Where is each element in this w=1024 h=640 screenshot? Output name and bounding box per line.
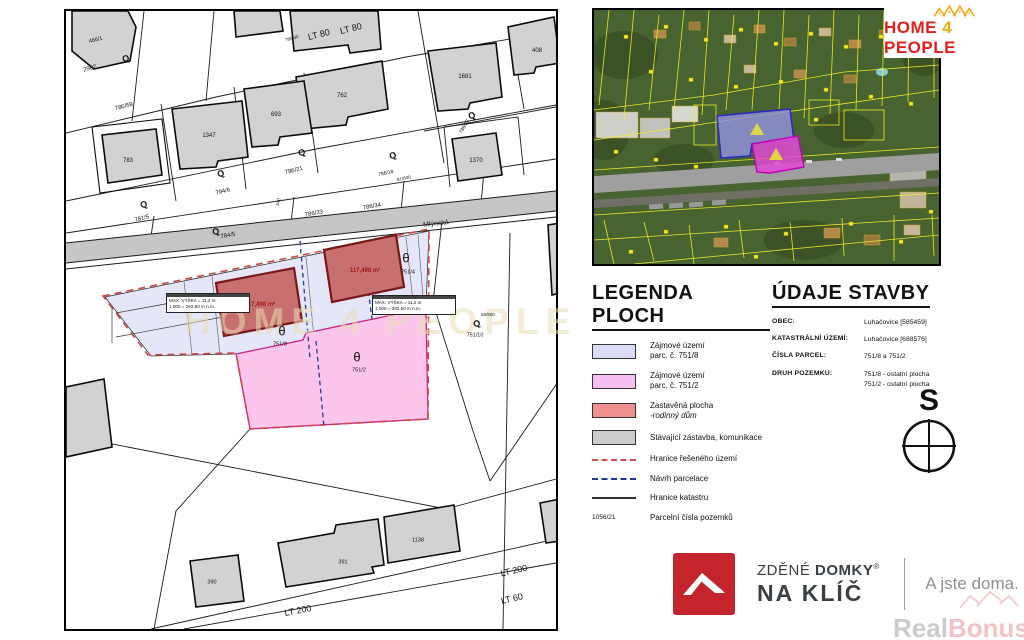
map-parcel-label: 390 bbox=[207, 580, 216, 586]
map-parcel-label: θ bbox=[402, 252, 409, 265]
home4people-logo: HOME 4 PEOPLE bbox=[884, 4, 1024, 58]
realbonus-word-bonus: Bonus bbox=[948, 613, 1024, 640]
legend-items: Zájmové územíparc. č. 751/8Zájmové území… bbox=[592, 341, 770, 523]
map-parcel-label: 781/5 bbox=[134, 214, 150, 223]
map-q-symbol: Q bbox=[216, 169, 226, 180]
realbonus-houses-icon bbox=[956, 588, 1020, 610]
legend-item-label: Stávající zástavba, komunikace bbox=[650, 433, 762, 443]
map-parcel-label: LT 80 bbox=[307, 28, 331, 42]
legend-item: Stávající zástavba, komunikace bbox=[592, 430, 770, 445]
building-data-value: 751/8 a 751/2 bbox=[864, 352, 906, 362]
legend-swatch bbox=[592, 344, 636, 359]
map-parcel-label: 786/21 bbox=[284, 166, 303, 176]
legend-section: LEGENDA PLOCH Zájmové územíparc. č. 751/… bbox=[592, 282, 770, 532]
legend-item: Zájmové územíparc. č. 751/2 bbox=[592, 371, 770, 392]
legend-item-label: Hranice katastru bbox=[650, 493, 708, 503]
building-data-label: KATASTRÁLNÍ ÚZEMÍ: bbox=[772, 335, 864, 345]
legend-swatch bbox=[592, 374, 636, 389]
registered-mark: ® bbox=[873, 562, 879, 571]
legend-key bbox=[592, 344, 638, 359]
map-parcel-label: θ bbox=[353, 351, 360, 364]
map-labels-layer: 466/12907786/59783134769376216814081370L… bbox=[66, 11, 556, 629]
legend-line-blue-dashed bbox=[592, 478, 636, 480]
zdene-domky-wordmark: ZDĚNÉ DOMKY® NA KLÍČ bbox=[757, 562, 880, 607]
cadastral-map: HOME 4 PEOPLE 466/12907786/5978313476937… bbox=[64, 9, 558, 631]
logo-word-domky: DOMKY bbox=[815, 562, 873, 579]
map-parcel-label: 81/600 bbox=[397, 175, 411, 182]
logo-word-people: PEOPLE bbox=[884, 38, 956, 57]
legend-line-solid bbox=[592, 497, 636, 499]
annotation-line: 1,000 = 292,50 m n.m. bbox=[169, 304, 247, 310]
building-data-value: Luhačovice [585459] bbox=[864, 318, 927, 328]
legend-swatch bbox=[592, 430, 636, 445]
legend-key bbox=[592, 459, 638, 461]
map-parcel-label: 751/10 bbox=[467, 333, 484, 339]
compass-label: S bbox=[898, 386, 960, 416]
legend-line-red-dashed bbox=[592, 459, 636, 461]
map-parcel-label: 640 bbox=[276, 198, 282, 206]
map-parcel-label: 786/59 bbox=[114, 102, 133, 112]
map-parcel-label: 391 bbox=[338, 560, 347, 566]
map-q-symbol: Q bbox=[388, 151, 398, 162]
map-parcel-label: LT 60 bbox=[500, 592, 524, 606]
legend-item: 1056/21Parcelní čísla pozemků bbox=[592, 513, 770, 523]
legend-item-label: Zastavěná plocha-rodinný dům bbox=[650, 401, 713, 422]
annotation-line: 1,000 = 292,50 m n.m. bbox=[375, 306, 453, 312]
legend-key bbox=[592, 430, 638, 445]
building-data-row: ČÍSLA PARCEL:751/8 a 751/2 bbox=[772, 352, 982, 362]
map-parcel-label: 751/2 bbox=[352, 368, 366, 374]
map-parcel-label: 117,498 m² bbox=[350, 268, 380, 274]
map-parcel-label: Mlýnská bbox=[423, 219, 449, 229]
map-parcel-label: 751/8 bbox=[273, 342, 287, 348]
map-parcel-label: 1347 bbox=[202, 133, 215, 139]
logo-word-four: 4 bbox=[942, 18, 952, 37]
legend-item: Zájmové územíparc. č. 751/8 bbox=[592, 341, 770, 362]
annotation-header-bar bbox=[167, 294, 249, 297]
building-data-label: ČÍSLA PARCEL: bbox=[772, 352, 864, 362]
page: HOME 4 PEOPLE 466/12907786/5978313476937… bbox=[0, 0, 1024, 640]
legend-key bbox=[592, 403, 638, 418]
map-parcel-label: LT 200 bbox=[500, 564, 529, 579]
map-parcel-label: 786/33 bbox=[304, 209, 323, 218]
logo-word-home: HOME bbox=[884, 18, 937, 37]
crown-icon bbox=[918, 4, 990, 18]
legend-item-label: Hranice řešeného území bbox=[650, 454, 737, 464]
legend-parcel-number-sample: 1056/21 bbox=[592, 514, 616, 521]
map-parcel-label: 786/32 bbox=[459, 119, 471, 135]
legend-item-label: Zájmové územíparc. č. 751/8 bbox=[650, 341, 705, 362]
annotation-header-bar bbox=[373, 296, 455, 299]
map-parcel-label: 1681 bbox=[458, 74, 471, 80]
legend-key bbox=[592, 374, 638, 389]
logo-word-zdene: ZDĚNÉ bbox=[757, 562, 810, 579]
map-parcel-label: 60/600 bbox=[481, 313, 495, 318]
building-data-label: OBEC: bbox=[772, 318, 864, 328]
building-data-label: DRUH POZEMKU: bbox=[772, 370, 864, 390]
map-parcel-label: 784/5 bbox=[220, 232, 236, 241]
map-q-symbol: Q bbox=[472, 319, 482, 330]
red-house-icon bbox=[673, 553, 735, 615]
legend-swatch bbox=[592, 403, 636, 418]
map-parcel-label: 762 bbox=[337, 93, 347, 99]
legend-item: Návrh parcelace bbox=[592, 474, 770, 484]
height-annotation-box: MAX. VÝŠKA = 11,2 m 1,000 = 292,50 m n.m… bbox=[372, 295, 456, 315]
map-parcel-label: LT 80 bbox=[339, 22, 363, 36]
realbonus-watermark: RealBonus.cz bbox=[893, 588, 1024, 640]
legend-item: Hranice katastru bbox=[592, 493, 770, 503]
map-parcel-label: 751/4 bbox=[401, 270, 415, 276]
realbonus-word-real: Real bbox=[893, 613, 948, 640]
map-q-symbol: Q bbox=[139, 200, 149, 211]
compass: S bbox=[898, 386, 960, 481]
logo-word-naklic: NA KLÍČ bbox=[757, 580, 880, 607]
legend-title: LEGENDA PLOCH bbox=[592, 282, 770, 331]
map-parcel-label: 1370 bbox=[469, 158, 482, 164]
map-parcel-label: 783 bbox=[123, 158, 133, 164]
legend-item-label: Návrh parcelace bbox=[650, 474, 708, 484]
legend-key: 1056/21 bbox=[592, 514, 638, 521]
map-q-symbol: Q bbox=[121, 54, 131, 65]
compass-icon bbox=[899, 416, 959, 476]
legend-key bbox=[592, 478, 638, 480]
map-parcel-label: 794/6 bbox=[215, 187, 231, 196]
map-parcel-label: 786/40 bbox=[285, 35, 299, 43]
legend-item-label: Zájmové územíparc. č. 751/2 bbox=[650, 371, 705, 392]
map-parcel-label: 1138 bbox=[412, 538, 424, 544]
building-data-row: KATASTRÁLNÍ ÚZEMÍ:Luhačovice [688576] bbox=[772, 335, 982, 345]
map-parcel-label: 786/34 bbox=[362, 202, 381, 211]
map-parcel-label: 466/1 bbox=[89, 37, 104, 46]
legend-item-label: Parcelní čísla pozemků bbox=[650, 513, 733, 523]
legend-key bbox=[592, 497, 638, 499]
legend-item: Hranice řešeného území bbox=[592, 454, 770, 464]
height-annotation-box: MAX. VÝŠKA = 11,2 m 1,000 = 292,50 m n.m… bbox=[166, 293, 250, 313]
legend-item: Zastavěná plocha-rodinný dům bbox=[592, 401, 770, 422]
map-parcel-label: 786/18 bbox=[378, 170, 394, 178]
map-parcel-label: 408 bbox=[532, 48, 542, 54]
home4people-wordmark: HOME 4 PEOPLE bbox=[884, 18, 1024, 58]
building-data-row: OBEC:Luhačovice [585459] bbox=[772, 318, 982, 328]
map-parcel-label: LT 200 bbox=[284, 604, 312, 618]
map-parcel-label: θ bbox=[278, 325, 285, 338]
building-data-rows: OBEC:Luhačovice [585459]KATASTRÁLNÍ ÚZEM… bbox=[772, 318, 982, 390]
building-data-value: Luhačovice [688576] bbox=[864, 335, 927, 345]
building-data-title: ÚDAJE STAVBY bbox=[772, 282, 930, 308]
map-parcel-label: 693 bbox=[271, 112, 281, 118]
map-parcel-label: 2907 bbox=[83, 64, 97, 73]
map-q-symbol: Q bbox=[297, 148, 307, 159]
building-data-section: ÚDAJE STAVBY OBEC:Luhačovice [585459]KAT… bbox=[772, 282, 982, 397]
